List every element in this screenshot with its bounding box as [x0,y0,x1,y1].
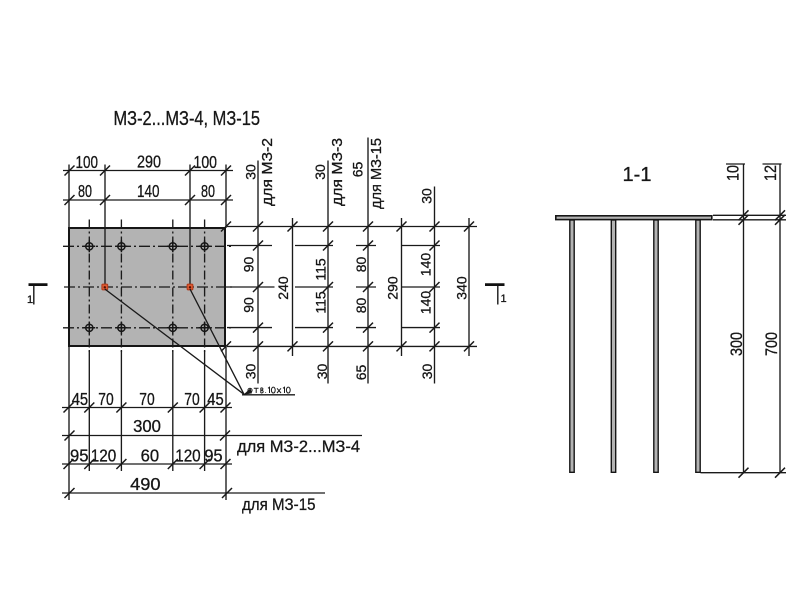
svg-text:120: 120 [91,446,117,466]
svg-text:80: 80 [353,257,369,273]
svg-text:70: 70 [139,389,155,409]
svg-text:140: 140 [418,291,434,315]
svg-text:45: 45 [72,389,88,409]
svg-text:30: 30 [419,364,435,380]
svg-text:МЗ-2...МЗ-4, МЗ-15: МЗ-2...МЗ-4, МЗ-15 [114,107,261,130]
svg-text:1: 1 [501,293,507,305]
svg-text:90: 90 [241,297,257,313]
svg-text:10: 10 [724,165,743,181]
svg-text:12: 12 [761,165,780,181]
svg-text:140: 140 [137,181,160,201]
svg-text:60: 60 [141,446,160,466]
svg-text:30: 30 [314,364,330,380]
svg-text:для МЗ-2...МЗ-4: для МЗ-2...МЗ-4 [237,437,360,456]
svg-text:70: 70 [184,389,200,409]
svg-text:30: 30 [312,164,328,180]
svg-text:240: 240 [275,276,291,300]
svg-text:1-1: 1-1 [623,164,652,186]
svg-text:30: 30 [419,188,435,204]
svg-text:70: 70 [98,389,114,409]
svg-text:1: 1 [27,294,33,306]
svg-text:30: 30 [243,364,259,380]
svg-text:для МЗ-3: для МЗ-3 [329,138,346,206]
svg-text:300: 300 [727,332,746,356]
svg-text:90: 90 [241,257,257,273]
svg-text:115: 115 [313,291,329,314]
svg-text:290: 290 [385,276,401,300]
svg-text:65: 65 [350,162,366,178]
svg-text:340: 340 [454,276,470,300]
svg-text:для МЗ-15: для МЗ-15 [368,138,385,209]
svg-text:300: 300 [133,416,161,436]
svg-text:490: 490 [130,474,161,494]
svg-text:140: 140 [418,253,434,277]
svg-text:65: 65 [353,365,369,381]
svg-text:100: 100 [194,152,218,172]
svg-text:45: 45 [207,389,223,409]
svg-text:95: 95 [204,446,223,466]
svg-text:290: 290 [137,152,161,172]
svg-text:115: 115 [313,258,329,281]
svg-text:для МЗ-15: для МЗ-15 [242,495,316,514]
svg-text:100: 100 [76,152,99,172]
svg-text:700: 700 [762,332,781,356]
svg-text:95: 95 [70,446,89,466]
svg-text:80: 80 [201,181,215,201]
svg-text:30: 30 [243,164,259,180]
svg-text:120: 120 [175,446,201,466]
svg-text:для МЗ-2: для МЗ-2 [259,138,276,206]
svg-text:80: 80 [353,298,369,314]
svg-text:80: 80 [78,181,92,201]
